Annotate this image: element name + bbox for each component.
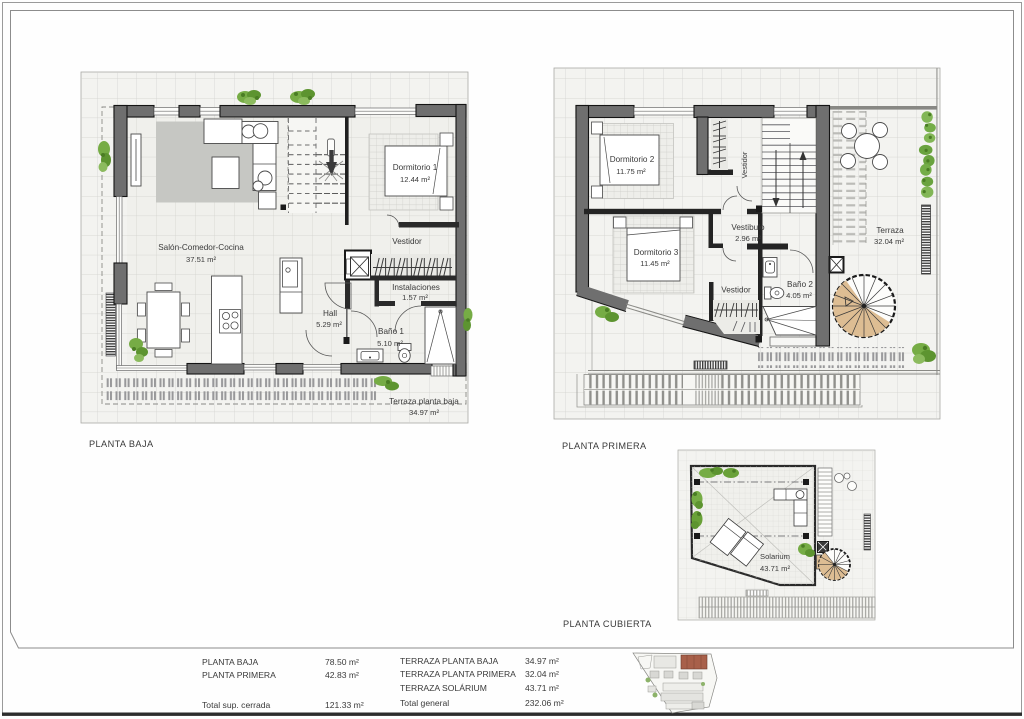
svg-text:78.50 m²: 78.50 m² <box>325 657 359 667</box>
svg-text:32.04 m²: 32.04 m² <box>874 237 904 246</box>
svg-text:2.96 m²: 2.96 m² <box>735 234 761 243</box>
svg-text:Vestidor: Vestidor <box>392 237 422 246</box>
svg-text:42.83 m²: 42.83 m² <box>325 670 359 680</box>
svg-text:Baño 1: Baño 1 <box>378 327 404 336</box>
svg-text:Total sup. cerrada: Total sup. cerrada <box>202 700 271 710</box>
svg-text:PLANTA PRIMERA: PLANTA PRIMERA <box>202 670 276 680</box>
svg-text:Hall: Hall <box>323 309 337 318</box>
svg-text:37.51 m²: 37.51 m² <box>186 255 216 264</box>
svg-text:TERRAZA SOLÁRIUM: TERRAZA SOLÁRIUM <box>400 683 487 693</box>
svg-text:11.75 m²: 11.75 m² <box>616 167 646 176</box>
svg-text:232.06 m²: 232.06 m² <box>525 698 564 708</box>
svg-text:5.10 m²: 5.10 m² <box>377 339 403 348</box>
svg-text:Terraza planta baja: Terraza planta baja <box>389 397 459 406</box>
svg-text:Vestidor: Vestidor <box>740 151 749 178</box>
svg-text:34.97 m²: 34.97 m² <box>525 656 559 666</box>
svg-text:4.05 m²: 4.05 m² <box>786 291 812 300</box>
svg-text:PLANTA BAJA: PLANTA BAJA <box>89 439 154 449</box>
svg-text:Baño 2: Baño 2 <box>787 280 813 289</box>
svg-text:Solarium: Solarium <box>760 552 790 561</box>
svg-text:Total general: Total general <box>400 698 449 708</box>
svg-text:34.97 m²: 34.97 m² <box>409 408 439 417</box>
svg-text:TERRAZA PLANTA PRIMERA: TERRAZA PLANTA PRIMERA <box>400 669 516 679</box>
svg-text:TERRAZA PLANTA BAJA: TERRAZA PLANTA BAJA <box>400 656 498 666</box>
svg-text:43.71 m²: 43.71 m² <box>760 564 790 573</box>
svg-text:Salón-Comedor-Cocina: Salón-Comedor-Cocina <box>158 243 244 252</box>
svg-text:Dormitorio 2: Dormitorio 2 <box>610 155 655 164</box>
svg-text:43.71 m²: 43.71 m² <box>525 683 559 693</box>
svg-text:11.45 m²: 11.45 m² <box>640 259 670 268</box>
svg-text:Dormitorio 3: Dormitorio 3 <box>634 248 679 257</box>
svg-text:PLANTA BAJA: PLANTA BAJA <box>202 657 258 667</box>
svg-text:5.29 m²: 5.29 m² <box>316 320 342 329</box>
svg-text:1.57 m²: 1.57 m² <box>402 293 428 302</box>
svg-text:12.44 m²: 12.44 m² <box>400 175 430 184</box>
svg-text:Dormitorio 1: Dormitorio 1 <box>393 163 438 172</box>
svg-text:32.04 m²: 32.04 m² <box>525 669 559 679</box>
svg-text:PLANTA PRIMERA: PLANTA PRIMERA <box>562 441 647 451</box>
svg-text:Terraza: Terraza <box>876 226 904 235</box>
svg-text:Vestibulo: Vestibulo <box>731 223 765 232</box>
svg-text:Vestidor: Vestidor <box>721 286 751 295</box>
svg-text:121.33 m²: 121.33 m² <box>325 700 364 710</box>
svg-text:PLANTA CUBIERTA: PLANTA CUBIERTA <box>563 619 652 629</box>
svg-text:Instalaciones: Instalaciones <box>392 283 440 292</box>
